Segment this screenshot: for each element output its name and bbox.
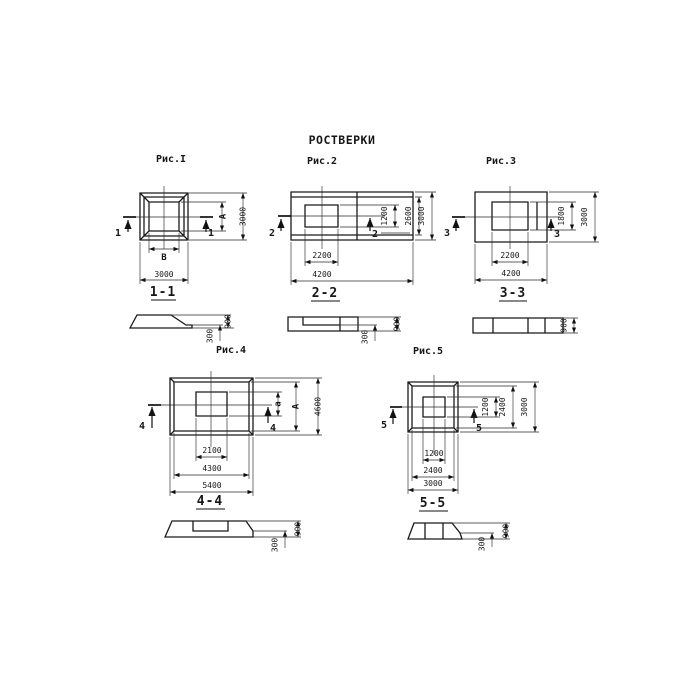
fig1-section-dim-900: 900 [224,314,233,329]
fig2-section-label: 2-2 [312,286,338,301]
fig5-cut-label-left: 5 [381,420,387,431]
fig4-dim-bottom-outer: 5400 [202,481,221,490]
fig5-section-dim-900: 900 [502,524,511,539]
fig5-dim-bottom-inner: 1200 [424,449,443,458]
fig4-dim-right-middle: А [292,403,302,409]
fig1-cut-label-right: 1 [208,228,214,239]
fig5-caption: Рис.5 [413,346,443,357]
fig4-extension-lines [170,378,322,496]
fig1-section-label: 1-1 [150,285,176,300]
fig1-dim-bottom-inner: В [161,253,167,263]
fig4-section-label: 4-4 [197,494,223,509]
fig3-dim-right-outer: 3000 [580,207,589,226]
sheet-title: РОСТВЕРКИ [309,133,376,147]
figure-ris-5: Рис.5 5 5 1200 2400 3000 1200 2400 3000 … [381,346,539,551]
fig1-section-dim-300: 300 [206,329,215,344]
fig2-dim-bottom-inner: 2200 [312,251,331,260]
fig2-cut-label-left: 2 [269,228,275,239]
fig4-dim-right-outer: 4600 [314,397,323,416]
fig5-cut-label-right: 5 [476,423,482,434]
fig3-cut-label-right: 3 [554,229,560,240]
fig2-cut-label-right: 2 [372,229,378,240]
fig1-caption: Рис.I [156,154,186,165]
fig2-dim-right-outer: 3000 [417,206,426,225]
fig4-dim-right-inner: а [274,401,284,406]
fig2-dim-right-inner: 1200 [380,206,389,225]
fig2-section-profile [288,317,358,331]
fig4-section-profile [165,521,253,537]
fig3-dim-bottom-outer: 4200 [501,269,520,278]
fig1-dim-right-outer: 3000 [239,207,248,226]
fig4-dim-bottom-inner: 2100 [202,446,221,455]
fig4-section-dim-900: 900 [294,522,303,537]
fig1-section-profile [130,315,192,328]
figure-ris-3: Рис.3 3 3 1800 3000 2200 4200 3-3 900 [444,156,599,333]
fig4-plan-outline [170,378,253,435]
fig1-dim-bottom-outer: 3000 [154,270,173,279]
fig2-section-dim-300: 300 [361,330,370,345]
fig4-cut-label-left: 4 [139,421,145,432]
fig3-cut-label-left: 3 [444,228,450,239]
fig4-cut-label-right: 4 [270,423,276,434]
fig5-section-label: 5-5 [420,496,446,511]
fig5-dim-right-outer: 3000 [520,397,529,416]
fig5-dim-bottom-outer: 3000 [423,479,442,488]
fig5-dim-bottom-middle: 2400 [423,466,442,475]
fig3-section-profile [473,318,563,333]
grillage-drawing: РОСТВЕРКИ Рис.I 1 1 А 3000 В 3000 1-1 90… [0,0,700,700]
fig2-caption: Рис.2 [307,156,337,167]
fig5-section-profile [408,523,462,539]
figure-ris-4: Рис.4 4 4 а А 4600 2100 4300 5400 4-4 90… [139,345,323,552]
fig3-centerlines [452,186,560,249]
fig4-caption: Рис.4 [216,345,246,356]
fig3-section-label: 3-3 [500,286,526,301]
fig1-cut-label-left: 1 [115,228,121,239]
fig5-dim-right-inner: 1200 [481,397,490,416]
fig2-dim-bottom-outer: 4200 [312,270,331,279]
figure-ris-2: Рис.2 2 2 1200 2600 3000 2200 4200 2-2 9… [269,156,436,344]
fig2-section-dim-900: 900 [393,317,402,332]
fig4-dim-bottom-middle: 4300 [202,464,221,473]
fig5-section-dim-300: 300 [478,537,487,552]
fig5-centerlines [390,375,478,455]
fig2-dim-right-middle: 2600 [404,206,413,225]
fig1-dim-right-inner: А [219,213,229,219]
figure-ris-1: Рис.I 1 1 А 3000 В 3000 1-1 900 300 [115,154,248,343]
fig3-dim-right-inner: 1800 [557,206,566,225]
fig3-dim-bottom-inner: 2200 [500,251,519,260]
fig3-section-dim-900: 900 [560,318,569,333]
fig5-dim-right-middle: 2400 [498,397,507,416]
fig4-section-dim-300: 300 [271,538,280,553]
fig3-caption: Рис.3 [486,156,516,167]
drawing-sheet: РОСТВЕРКИ Рис.I 1 1 А 3000 В 3000 1-1 90… [0,0,700,700]
